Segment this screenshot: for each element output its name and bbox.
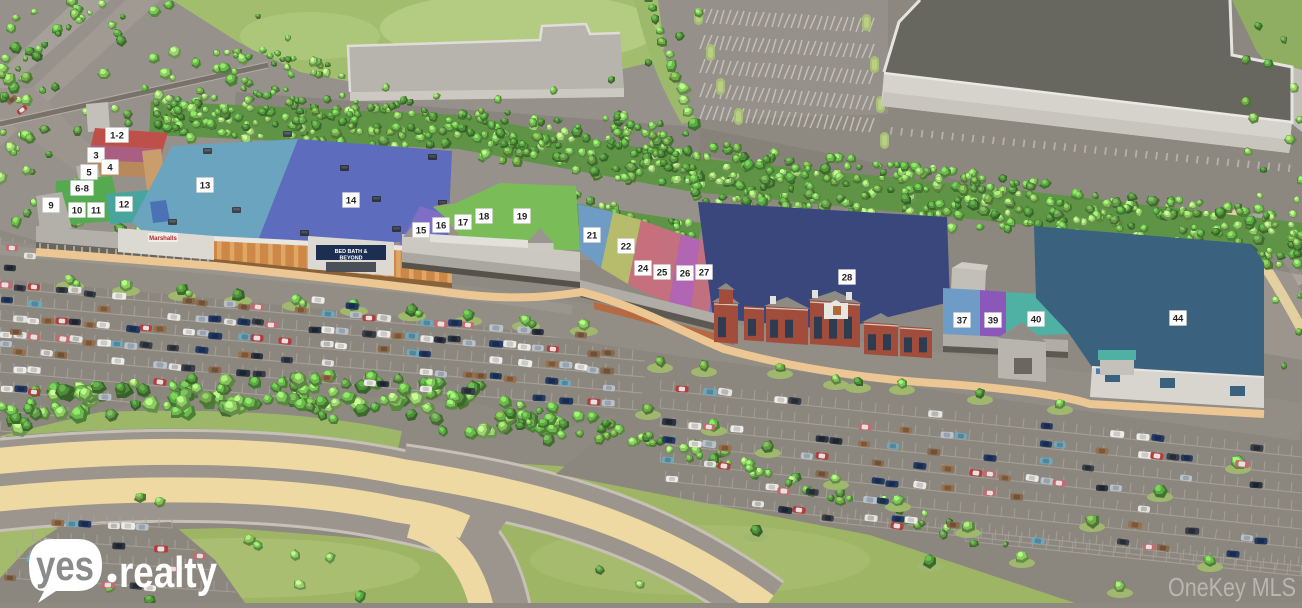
svg-text:Marshalls: Marshalls (149, 236, 177, 242)
svg-text:BEYOND: BEYOND (339, 256, 362, 262)
svg-text:BED BATH &: BED BATH & (335, 249, 368, 255)
